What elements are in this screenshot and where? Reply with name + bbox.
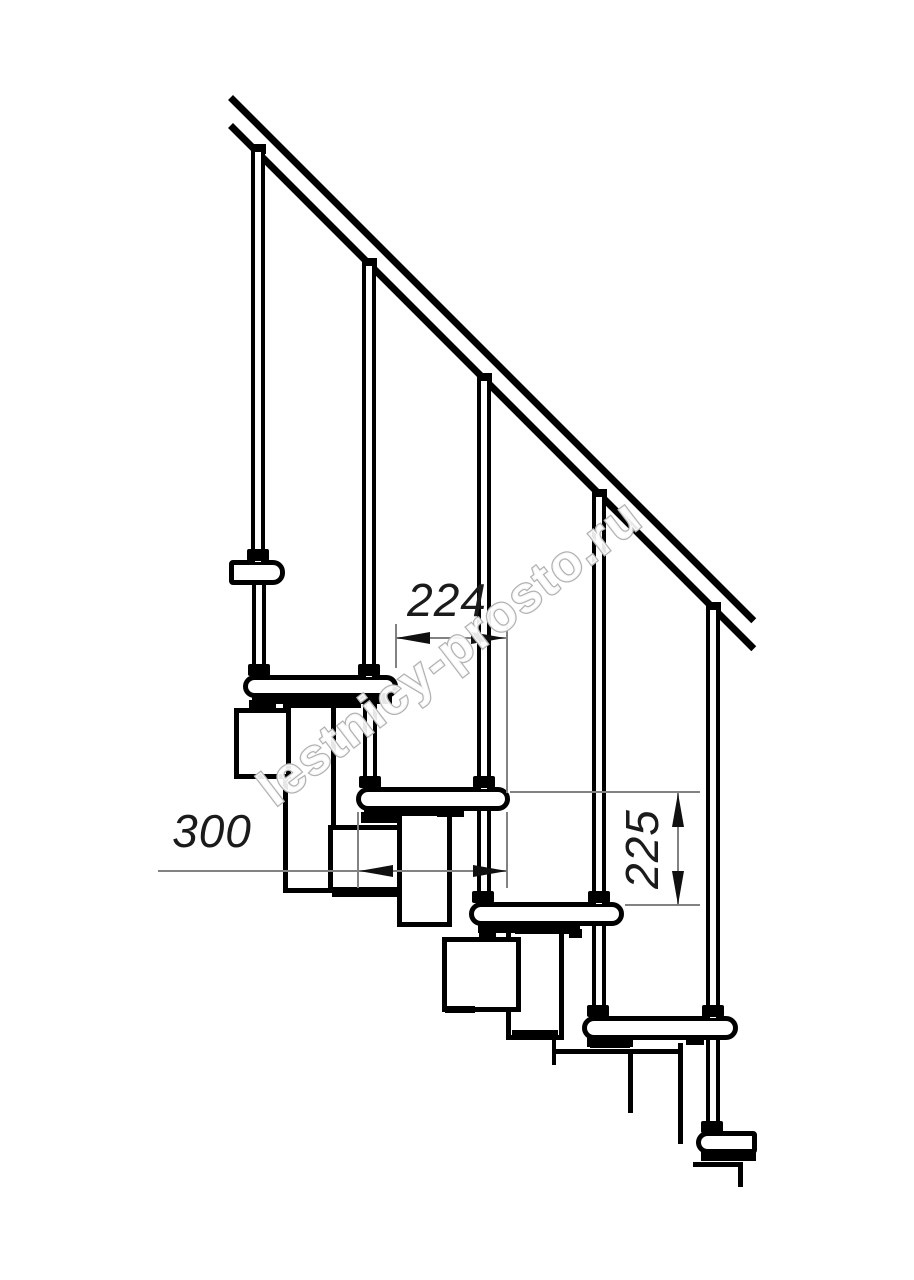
baluster-stub-3 [477, 809, 491, 904]
dim-224-ext-right [506, 624, 508, 793]
baluster-4-collar [588, 891, 610, 903]
dim-225-arrow-down [672, 871, 684, 905]
dim-225-label: 225 [615, 809, 669, 889]
break-line-v1 [628, 1052, 633, 1113]
module-gasket-2 [332, 889, 405, 897]
handrail-bottom-line [228, 123, 756, 651]
dim-300-arrow-right [473, 865, 507, 877]
dim-224-label: 224 [407, 573, 487, 627]
baluster-1 [251, 152, 265, 562]
module-gasket-3 [445, 1006, 475, 1013]
module-box-3 [442, 937, 521, 1012]
baluster-5-collar [702, 1005, 724, 1017]
tread-1 [229, 560, 285, 585]
tread-4 [469, 902, 624, 926]
tread-3-pad-b [437, 807, 464, 817]
module-neck-2 [397, 810, 452, 927]
tread-4-pad-a [479, 928, 496, 938]
watermark: lestnicy-prosto.ru [0, 0, 914, 1280]
baluster-5 [706, 610, 720, 1018]
staircase-drawing: 224 300 225 lestnicy-prosto.ru [0, 0, 914, 1280]
tread-4-pad-b [515, 926, 569, 934]
dim-300-arrow-left [359, 865, 393, 877]
tread-2-pad-b [329, 699, 361, 708]
tread-2-pad-a [249, 700, 276, 710]
module-box-1 [234, 708, 291, 779]
baluster-2-collar [358, 664, 380, 676]
dim-300-label: 300 [172, 804, 252, 858]
baluster-2 [362, 266, 376, 677]
baluster-1-collar [247, 549, 269, 561]
break-line-bottom-h [693, 1162, 741, 1167]
tread-4-pad-c [569, 929, 582, 938]
tread-5-pad-b [686, 1036, 704, 1045]
tread-5-pad-a [590, 1040, 630, 1048]
dim-225-arrow-up [672, 793, 684, 827]
tread-3-pad-a [361, 812, 399, 823]
tread-6-gasket [701, 1151, 756, 1161]
dim-225-ext-bottom [625, 904, 700, 906]
break-line-v2 [678, 1043, 683, 1144]
module-box-2 [328, 825, 405, 892]
dim-224-arrow-left [396, 632, 430, 644]
tread-2 [243, 675, 398, 698]
break-line-bottom-v [738, 1162, 743, 1187]
break-line-top [555, 1049, 682, 1054]
dim-224-arrow-right [471, 632, 505, 644]
module-gasket-3b [512, 1030, 558, 1039]
dim-224-ext-left [395, 624, 397, 668]
baluster-3-collar [473, 776, 495, 788]
dim-300-line [158, 870, 508, 872]
baluster-4 [592, 497, 606, 904]
tread-5 [582, 1016, 738, 1040]
handrail-top-line [228, 95, 756, 623]
